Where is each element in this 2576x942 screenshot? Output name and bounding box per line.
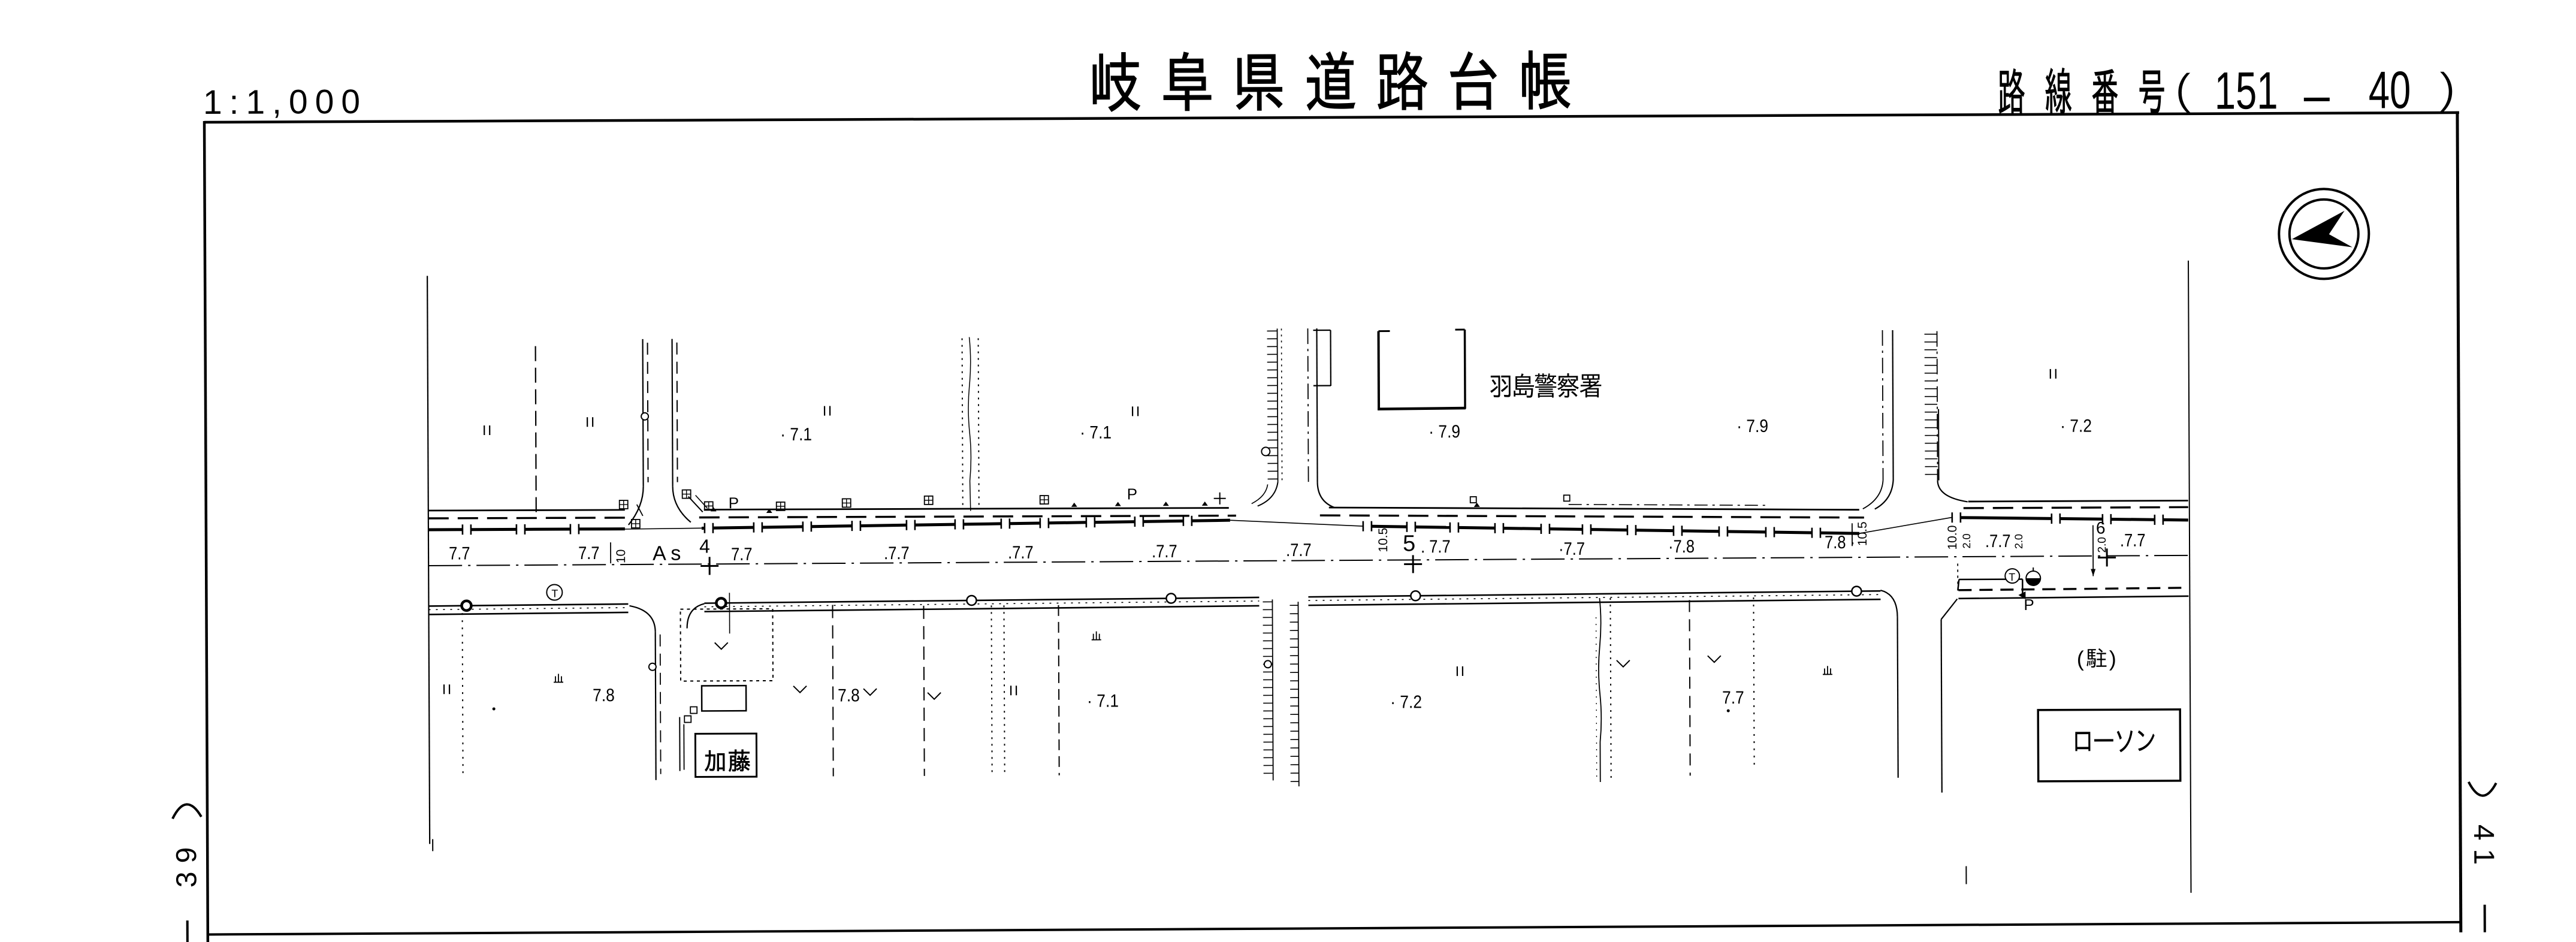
svg-text:10.5: 10.5 — [1856, 521, 1870, 546]
svg-text:7.7: 7.7 — [449, 543, 470, 563]
svg-text:7.7: 7.7 — [578, 543, 600, 563]
svg-text:T: T — [2009, 571, 2015, 583]
svg-text:2.0: 2.0 — [2096, 537, 2109, 553]
svg-text:P: P — [729, 494, 739, 512]
svg-text:40: 40 — [2369, 61, 2411, 120]
svg-text:· 7.9: · 7.9 — [1429, 421, 1460, 441]
svg-text:A s: A s — [653, 542, 681, 565]
svg-text:· 7.1: · 7.1 — [780, 424, 812, 444]
svg-text:.7.7: .7.7 — [1152, 541, 1177, 561]
svg-text:41: 41 — [2468, 825, 2499, 874]
svg-text:.7.7: .7.7 — [1286, 540, 1312, 560]
svg-text:· 7.1: · 7.1 — [1080, 422, 1112, 442]
svg-text:1:1,000: 1:1,000 — [203, 83, 367, 122]
svg-text:·7.7: ·7.7 — [1559, 539, 1585, 559]
svg-text:.7.7: .7.7 — [1985, 531, 2011, 551]
svg-text:· 7.9: · 7.9 — [1737, 415, 1768, 436]
svg-text:. 7.7: . 7.7 — [1421, 536, 1451, 557]
svg-text:7.8: 7.8 — [593, 684, 615, 705]
svg-text:.7.7: .7.7 — [884, 543, 910, 563]
svg-text:151: 151 — [2215, 62, 2278, 120]
svg-text:10.5: 10.5 — [1376, 528, 1390, 552]
svg-text:): ) — [2109, 646, 2116, 671]
svg-text:(: ( — [2077, 647, 2084, 671]
svg-text:7.7: 7.7 — [1722, 687, 1744, 707]
svg-text:2.0: 2.0 — [2013, 534, 2025, 549]
svg-text:P: P — [1127, 485, 1137, 503]
svg-text:4: 4 — [699, 535, 710, 557]
svg-text:· 7.1: · 7.1 — [1087, 690, 1119, 711]
svg-text:10: 10 — [614, 549, 628, 563]
svg-text:.7.7: .7.7 — [2120, 530, 2146, 551]
svg-text:6: 6 — [2096, 518, 2106, 537]
svg-text:·7.8: ·7.8 — [1668, 536, 1695, 557]
svg-text:7.8: 7.8 — [838, 685, 860, 705]
svg-text:· 7.2: · 7.2 — [1390, 692, 1422, 712]
svg-text:10.0: 10.0 — [1946, 526, 1959, 550]
svg-text:7.7: 7.7 — [731, 544, 753, 564]
svg-text:T: T — [551, 587, 558, 599]
svg-text:5: 5 — [1403, 531, 1415, 556]
svg-text:2.0: 2.0 — [1961, 533, 1973, 548]
svg-text:39: 39 — [171, 839, 203, 888]
svg-text:.7.7: .7.7 — [1008, 542, 1034, 563]
svg-text:· 7.2: · 7.2 — [2060, 415, 2092, 436]
svg-text:7.8 ·: 7.8 · — [1825, 532, 1855, 552]
